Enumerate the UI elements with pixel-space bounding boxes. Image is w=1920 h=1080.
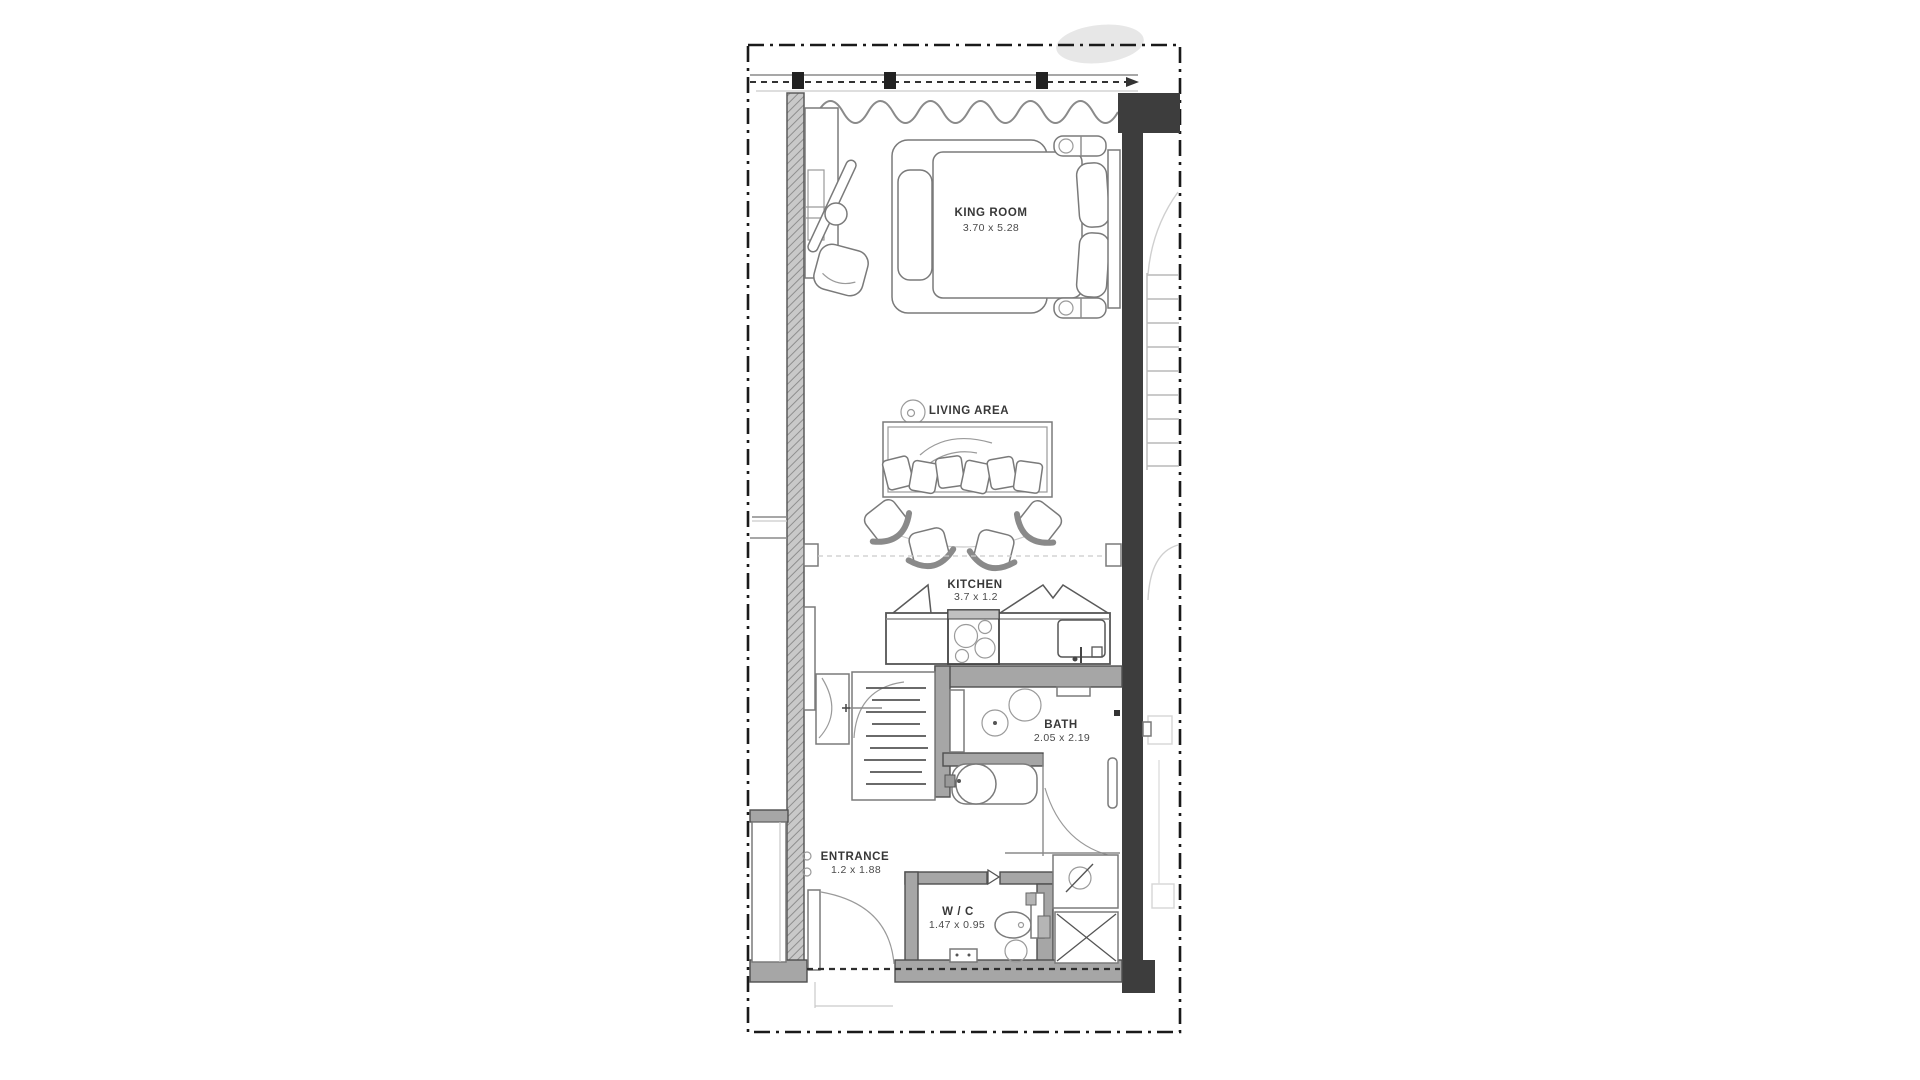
entrance-door-swing bbox=[821, 892, 894, 964]
floor-plan-svg: KING ROOM 3.70 x 5.28 LIVING AREA bbox=[0, 0, 1920, 1080]
direction-arrow-icon bbox=[1126, 77, 1139, 87]
toilet bbox=[995, 893, 1044, 938]
desk-and-chair bbox=[805, 108, 871, 299]
floor-drain bbox=[1005, 940, 1027, 962]
upper-cabinet-right bbox=[1000, 585, 1108, 613]
left-service-room bbox=[752, 822, 786, 962]
door-stud bbox=[1114, 710, 1120, 716]
king-room-dim: 3.70 x 5.28 bbox=[963, 222, 1019, 234]
wc-dim: 1.47 x 0.95 bbox=[929, 919, 985, 931]
wall-pilaster bbox=[804, 607, 815, 710]
towel-rail bbox=[1108, 758, 1117, 808]
sofa bbox=[882, 422, 1052, 497]
bathtub bbox=[945, 764, 1037, 804]
kitchen-label: KITCHEN bbox=[947, 579, 1002, 591]
facade-window-band bbox=[750, 72, 1139, 91]
stairs bbox=[1147, 192, 1179, 908]
left-wall bbox=[787, 93, 804, 963]
kitchen-dim: 3.7 x 1.2 bbox=[954, 591, 998, 603]
wc-door-mark bbox=[988, 870, 999, 884]
living-area-label: LIVING AREA bbox=[929, 405, 1009, 417]
dark-walls bbox=[1118, 93, 1180, 993]
light-symbol-icon bbox=[901, 400, 925, 424]
floor-plan: KING ROOM 3.70 x 5.28 LIVING AREA bbox=[0, 0, 1920, 1080]
living-area: LIVING AREA bbox=[857, 400, 1068, 573]
bath-label: BATH bbox=[1044, 719, 1078, 731]
kitchen: KITCHEN 3.7 x 1.2 bbox=[886, 579, 1110, 664]
entrance-dim: 1.2 x 1.88 bbox=[831, 864, 881, 876]
door-handle bbox=[1143, 722, 1151, 736]
left-strip-lines bbox=[750, 517, 787, 538]
entrance-door-leaf bbox=[808, 890, 820, 970]
nightstand-bottom bbox=[1054, 298, 1106, 318]
vent-box bbox=[950, 949, 977, 962]
king-room-label: KING ROOM bbox=[954, 207, 1027, 219]
curtain-line bbox=[818, 101, 1118, 123]
bath-door-swing bbox=[1045, 788, 1116, 857]
nightstand-top bbox=[1054, 136, 1106, 156]
stove bbox=[948, 610, 999, 664]
entrance-label: ENTRANCE bbox=[821, 851, 890, 863]
wardrobe bbox=[852, 672, 935, 800]
upper-cabinet-left bbox=[893, 585, 931, 613]
armchairs bbox=[857, 493, 1068, 573]
bath-dim: 2.05 x 2.19 bbox=[1034, 732, 1090, 744]
shower-area bbox=[1053, 855, 1118, 963]
bath: BATH 2.05 x 2.19 bbox=[945, 687, 1151, 857]
wc-label: W / C bbox=[942, 906, 974, 918]
king-room: KING ROOM 3.70 x 5.28 bbox=[805, 108, 1120, 318]
kitchen-sink bbox=[1058, 620, 1105, 663]
bath-basin bbox=[1009, 689, 1041, 721]
